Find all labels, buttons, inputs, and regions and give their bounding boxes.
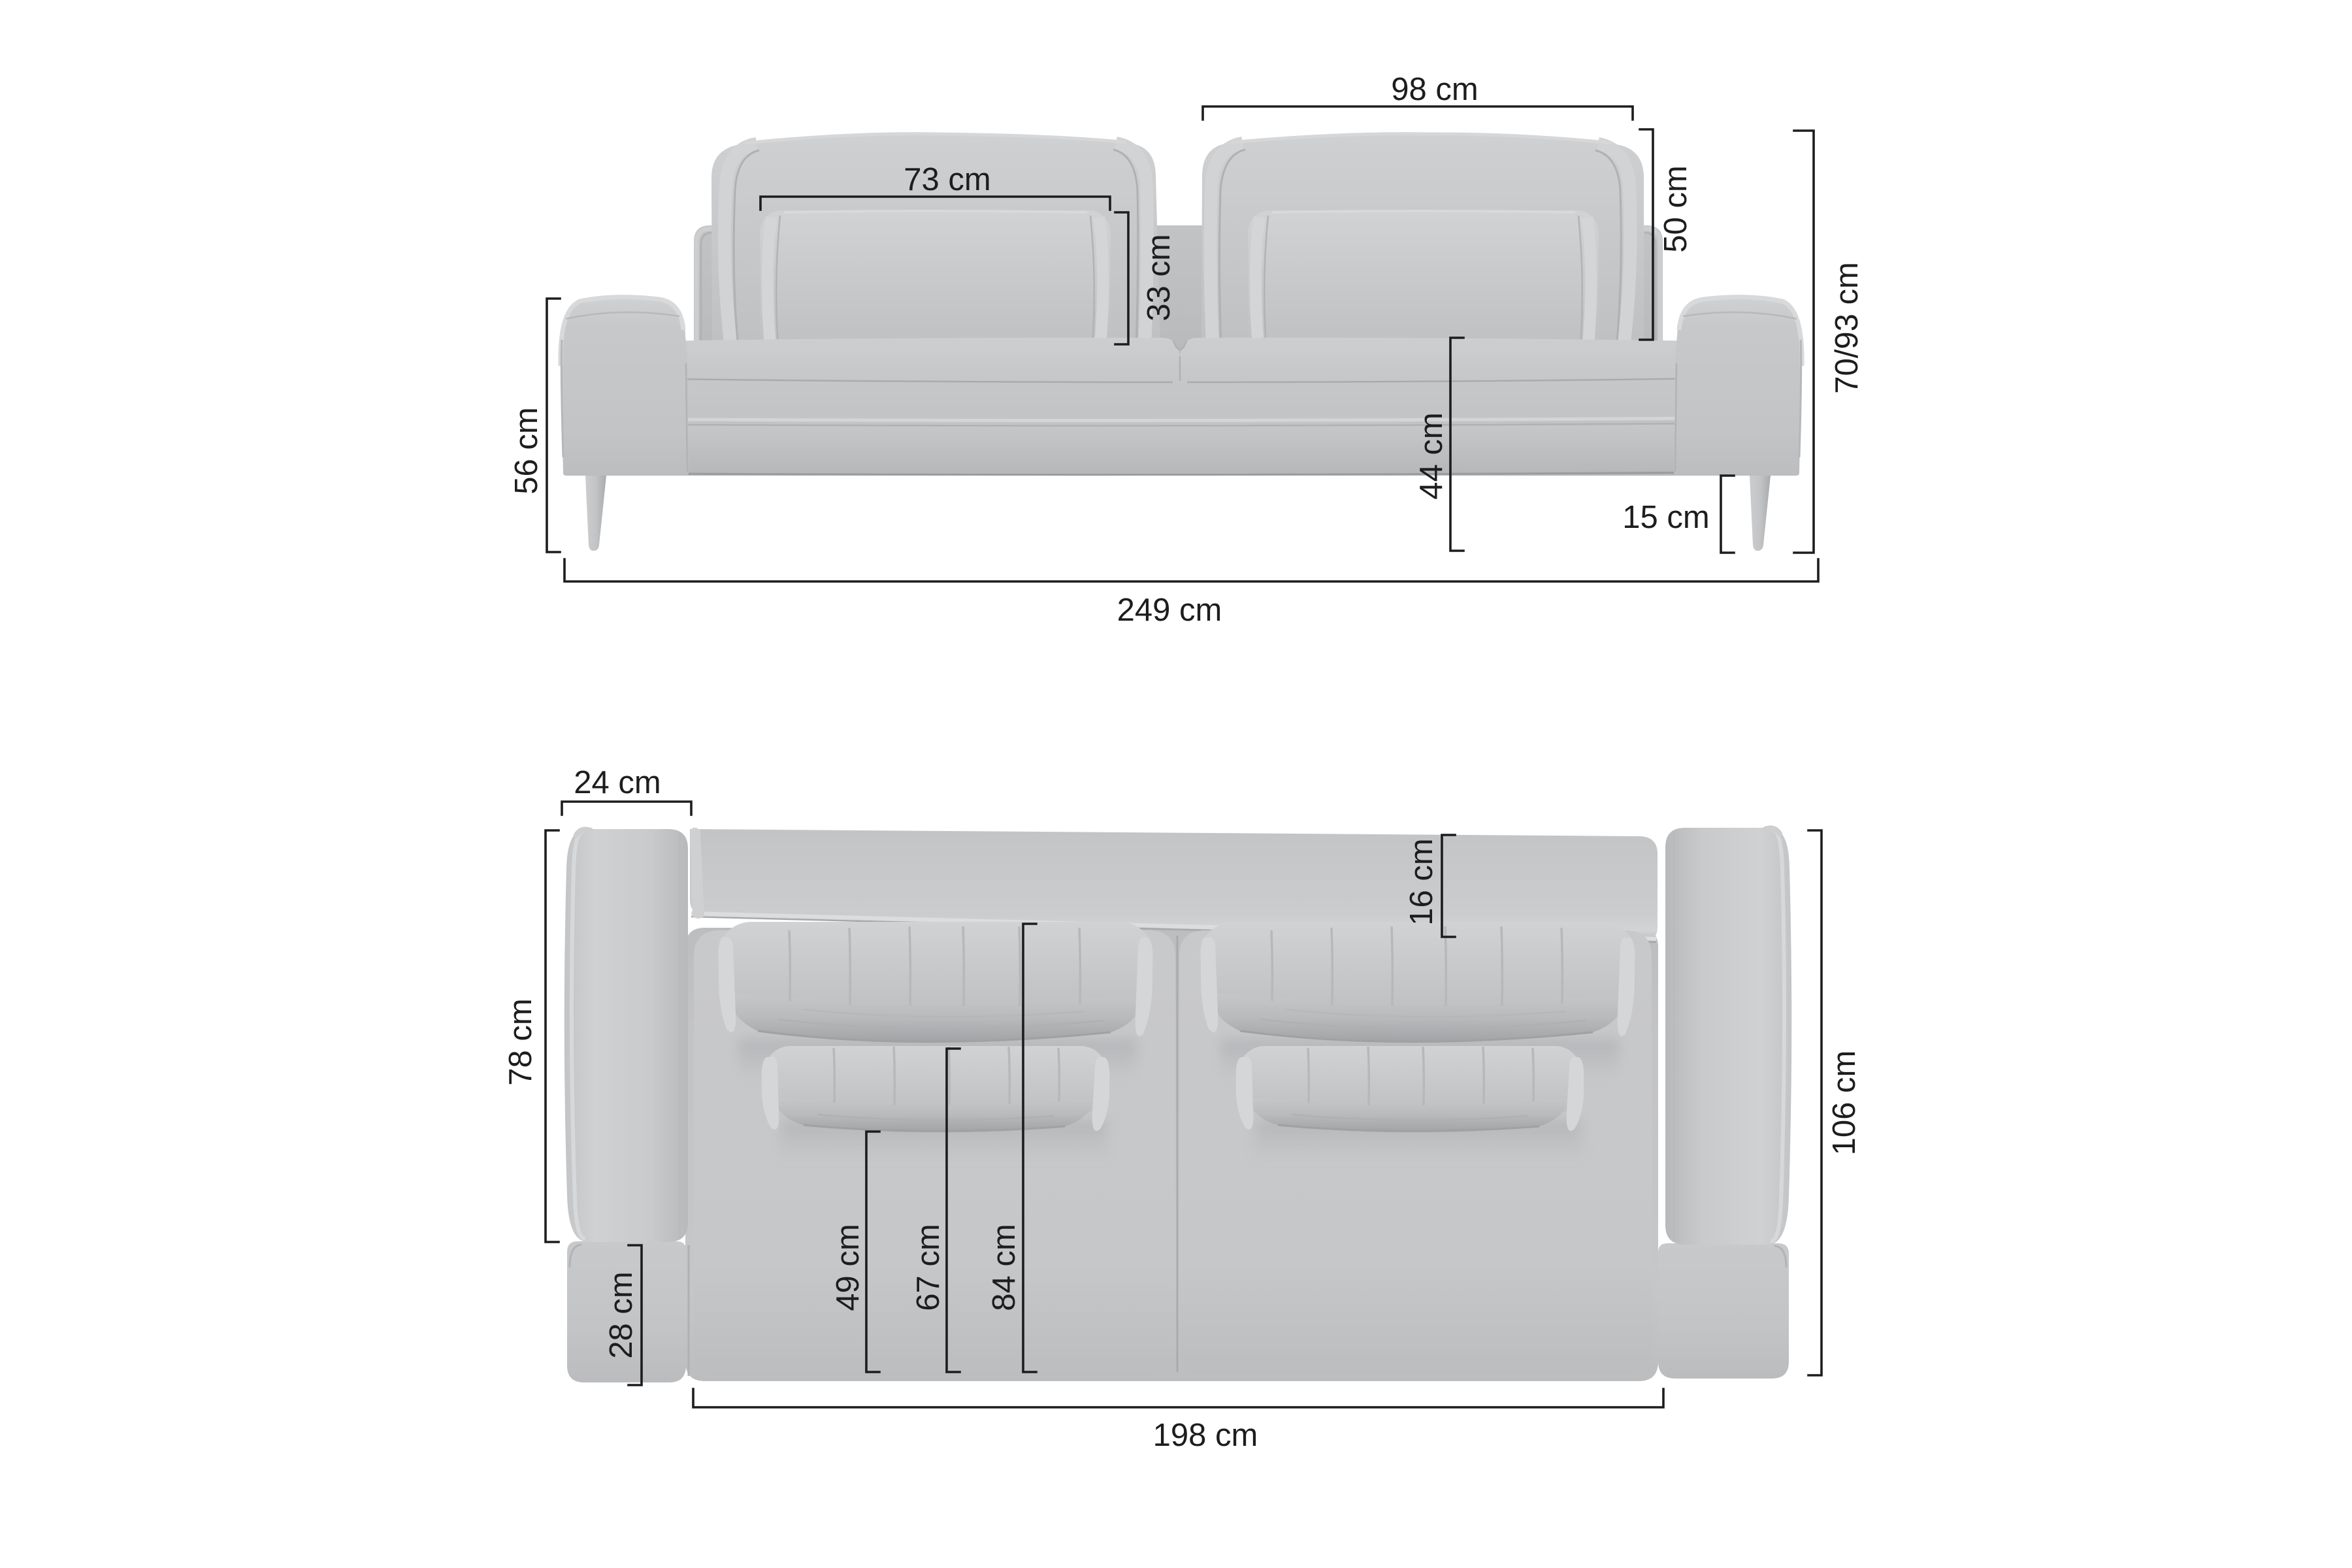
svg-text:249 cm: 249 cm	[1117, 593, 1222, 628]
svg-text:16 cm: 16 cm	[1404, 838, 1439, 925]
svg-text:49 cm: 49 cm	[830, 1224, 866, 1311]
svg-text:106 cm: 106 cm	[1827, 1051, 1862, 1156]
svg-text:73 cm: 73 cm	[904, 162, 990, 197]
svg-text:70/93 cm: 70/93 cm	[1829, 262, 1865, 394]
svg-text:24 cm: 24 cm	[574, 765, 661, 800]
svg-text:33 cm: 33 cm	[1141, 234, 1177, 321]
svg-text:67 cm: 67 cm	[911, 1224, 946, 1311]
svg-text:98 cm: 98 cm	[1391, 72, 1478, 107]
svg-text:78 cm: 78 cm	[503, 998, 538, 1085]
svg-text:28 cm: 28 cm	[604, 1271, 639, 1358]
svg-text:56 cm: 56 cm	[509, 407, 544, 494]
svg-text:198 cm: 198 cm	[1153, 1418, 1258, 1453]
svg-text:44 cm: 44 cm	[1414, 412, 1449, 499]
svg-text:50 cm: 50 cm	[1658, 165, 1693, 252]
svg-text:84 cm: 84 cm	[987, 1224, 1022, 1311]
svg-text:15 cm: 15 cm	[1622, 500, 1709, 535]
